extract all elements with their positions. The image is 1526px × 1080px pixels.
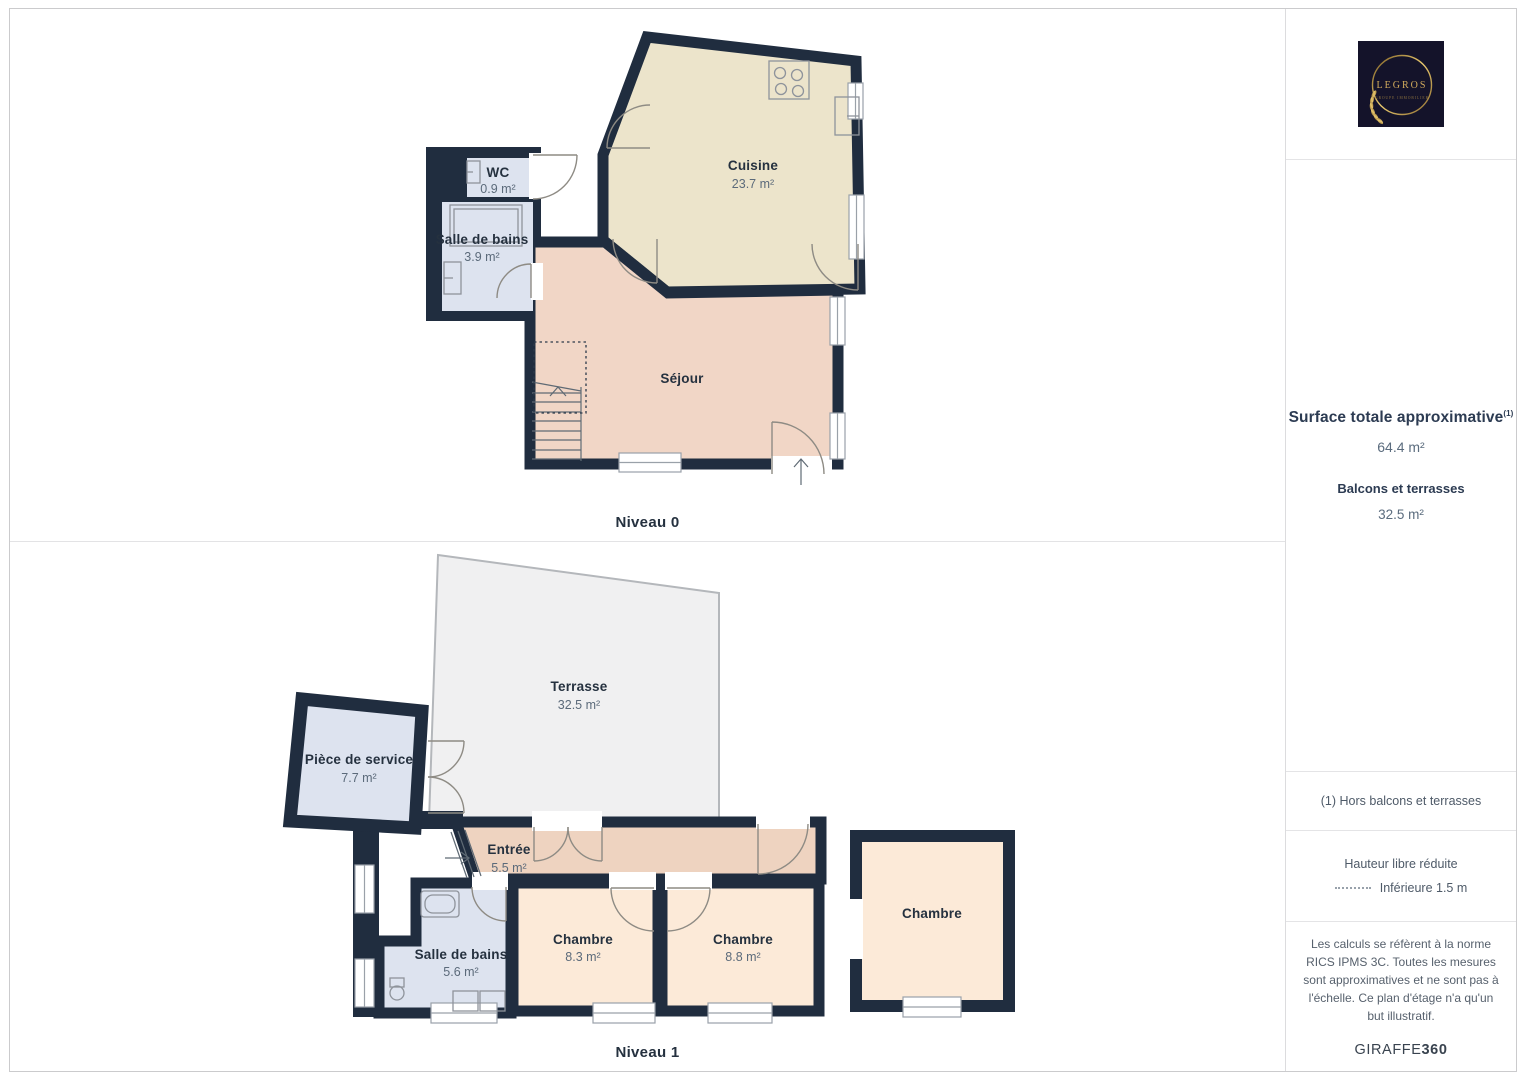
door-gap-terrasse: [532, 811, 602, 831]
level0-label: Niveau 0: [10, 514, 1285, 531]
window: [355, 865, 374, 913]
room-label: Salle de bains: [436, 232, 529, 247]
floorplan-page: Cuisine 23.7 m² Séjour WC 0.9 m² Salle d…: [0, 0, 1526, 1080]
legros-logo: LEGROS GROUPE IMMOBILIER: [1358, 41, 1444, 127]
surface-total-value: 64.4 m²: [1289, 439, 1514, 455]
room-area: 3.9 m²: [464, 250, 499, 264]
window: [830, 413, 845, 459]
room-area: 5.6 m²: [443, 965, 478, 979]
surface-title-footnote-marker: (1): [1503, 409, 1513, 418]
room-chambre3-shape: [856, 836, 1009, 1006]
room-label: Entrée: [487, 842, 531, 857]
disclaimer-text: Les calculs se réfèrent à la norme RICS …: [1299, 935, 1503, 1025]
surface-summary-section: Surface totale approximative(1) 64.4 m² …: [1286, 160, 1516, 772]
panel-level1: Terrasse 32.5 m² Pièce de service 7.7 m²…: [10, 542, 1285, 1071]
room-area: 5.5 m²: [491, 861, 526, 875]
room-chambre2-shape: [662, 883, 819, 1011]
room-area: 8.8 m²: [725, 950, 760, 964]
window: [619, 453, 681, 472]
door-gap-bath: [531, 263, 543, 300]
door-gap-entree-right: [756, 813, 810, 829]
window: [848, 83, 863, 119]
room-label: Pièce de service: [305, 752, 414, 767]
panel-level0: Cuisine 23.7 m² Séjour WC 0.9 m² Salle d…: [10, 9, 1285, 542]
room-label: Terrasse: [551, 679, 608, 694]
room-area: 0.9 m²: [480, 182, 515, 196]
window: [849, 195, 864, 259]
legend-section: Hauteur libre réduite Inférieure 1.5 m: [1286, 831, 1516, 922]
room-label: Chambre: [553, 932, 613, 947]
room-label: Cuisine: [728, 158, 778, 173]
level1-label: Niveau 1: [10, 1044, 1285, 1061]
legend-title: Hauteur libre réduite: [1344, 857, 1457, 871]
room-label: WC: [487, 165, 510, 180]
room-label: Salle de bains: [415, 947, 508, 962]
balconies-value: 32.5 m²: [1289, 507, 1514, 522]
balconies-label: Balcons et terrasses: [1289, 481, 1514, 496]
floorplan-level1: Terrasse 32.5 m² Pièce de service 7.7 m²…: [10, 542, 1285, 1071]
disclaimer-section: Les calculs se réfèrent à la norme RICS …: [1286, 922, 1516, 1071]
window: [830, 297, 845, 345]
sidebar: LEGROS GROUPE IMMOBILIER Surface totale …: [1285, 9, 1516, 1071]
door-gap-chambre3: [849, 899, 863, 959]
window: [355, 959, 374, 1007]
dotted-line-icon: [1335, 887, 1371, 889]
footnote-section: (1) Hors balcons et terrasses: [1286, 772, 1516, 831]
page-frame: Cuisine 23.7 m² Séjour WC 0.9 m² Salle d…: [9, 8, 1517, 1072]
logo-brand-text: LEGROS: [1377, 80, 1428, 91]
logo-tagline-text: GROUPE IMMOBILIER: [1375, 96, 1429, 100]
plans-area: Cuisine 23.7 m² Séjour WC 0.9 m² Salle d…: [10, 9, 1285, 1071]
door-gap-wc: [529, 153, 543, 199]
legend-item-text: Inférieure 1.5 m: [1380, 881, 1468, 895]
room-area: 23.7 m²: [732, 177, 774, 191]
room-area: 32.5 m²: [558, 698, 600, 712]
floorplan-level0: Cuisine 23.7 m² Séjour WC 0.9 m² Salle d…: [10, 9, 1285, 542]
window: [903, 997, 961, 1017]
room-label: Chambre: [713, 932, 773, 947]
window: [593, 1003, 655, 1023]
room-area: 8.3 m²: [565, 950, 600, 964]
footnote-text: (1) Hors balcons et terrasses: [1321, 794, 1481, 808]
room-label: Séjour: [660, 371, 704, 386]
room-area: 7.7 m²: [341, 771, 376, 785]
giraffe360-logo: GIRAFFE360: [1354, 1042, 1447, 1058]
logo-section: LEGROS GROUPE IMMOBILIER: [1286, 9, 1516, 160]
surface-title: Surface totale approximative(1): [1289, 409, 1514, 427]
room-chambre1-shape: [513, 883, 658, 1011]
window: [708, 1003, 772, 1023]
room-label: Chambre: [902, 906, 962, 921]
window: [431, 1003, 497, 1023]
